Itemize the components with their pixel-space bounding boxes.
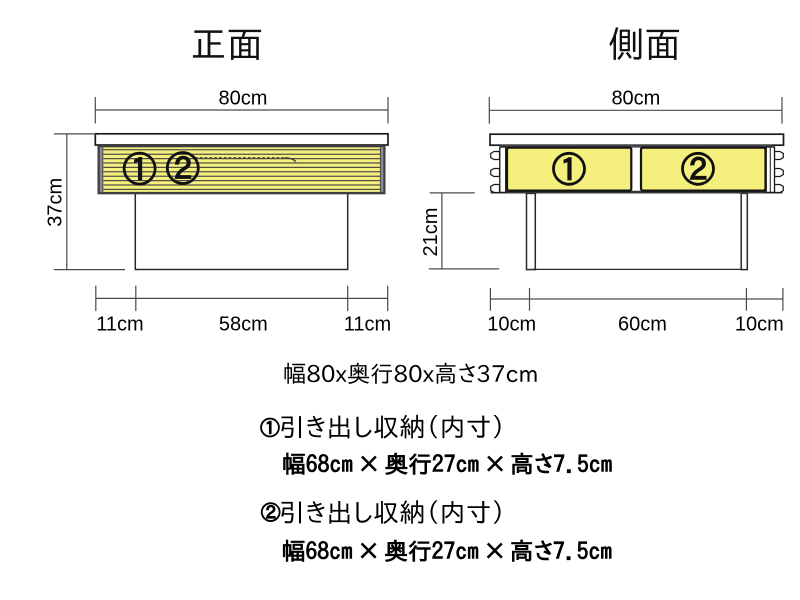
- svg-text:58cm: 58cm: [219, 314, 268, 336]
- svg-text:10cm: 10cm: [487, 314, 536, 336]
- svg-text:80cm: 80cm: [219, 88, 268, 110]
- svg-text:11cm: 11cm: [96, 314, 143, 336]
- svg-text:60cm: 60cm: [618, 314, 667, 336]
- svg-text:80cm: 80cm: [611, 88, 660, 110]
- svg-text:37cm: 37cm: [44, 178, 66, 227]
- svg-text:11cm: 11cm: [344, 314, 391, 336]
- svg-text:10cm: 10cm: [735, 314, 784, 336]
- svg-text:21cm: 21cm: [420, 208, 442, 257]
